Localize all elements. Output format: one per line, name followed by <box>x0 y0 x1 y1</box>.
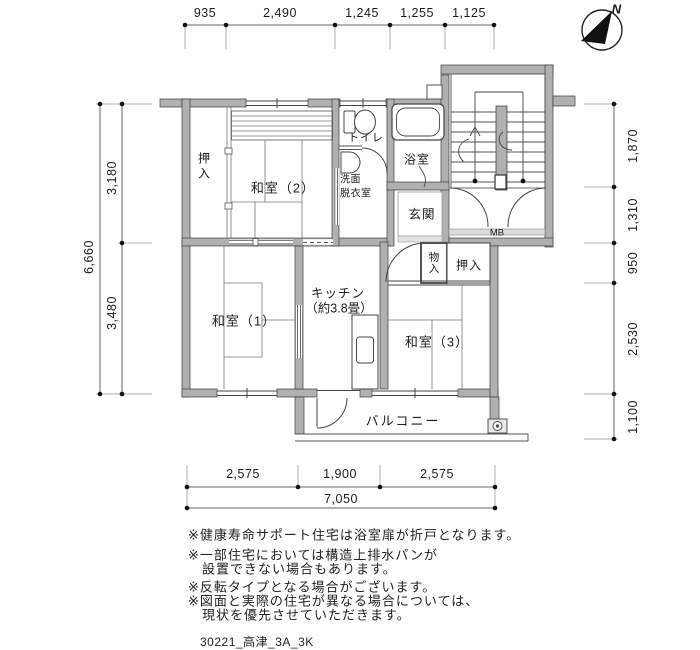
dim-label-bottom-total: 7,050 <box>324 492 358 506</box>
note-line-1: ※健康寿命サポート住宅は浴室扉が折戸となります。 <box>188 525 520 544</box>
dim-label-bottom-3: 2,575 <box>420 467 454 481</box>
duct-box <box>427 85 442 99</box>
note-line-6: 現状を優先させていただきます。 <box>188 605 411 624</box>
room-label-kitchen-2: （約3.8畳） <box>305 298 372 317</box>
dim-label-top-3: 1,245 <box>345 6 379 20</box>
toilet-partition <box>339 146 362 150</box>
dim-label-right-2: 1,310 <box>626 198 640 232</box>
hall-door-arc <box>386 243 425 282</box>
room-label-genkan: 玄関 <box>408 204 435 223</box>
note-line-3: 設置できない場合もあります。 <box>188 559 397 578</box>
balcony-door-arc <box>317 398 347 428</box>
dim-label-left-2: 3,480 <box>105 296 119 330</box>
dim-label-left-total: 6,660 <box>82 240 96 274</box>
room-label-monoire: 物入 <box>427 252 442 275</box>
balcony-drain-icon <box>488 419 507 433</box>
bathtub-icon <box>392 104 444 140</box>
room-label-washitsu3: 和室（3） <box>405 332 469 351</box>
entrance-door-arc-right <box>508 188 546 227</box>
stair-direction-lines <box>459 92 523 181</box>
room-label-senmen-2: 脱衣室 <box>340 185 372 200</box>
room-label-senmen-1: 洗面 <box>340 171 361 186</box>
north-label: N <box>612 2 622 17</box>
room-label-oshiire-left: 押入 <box>196 152 213 182</box>
room-label-oshiire-right: 押入 <box>456 257 482 274</box>
toilet-door-arc <box>362 148 387 173</box>
landing-stub-wall <box>495 175 506 189</box>
dim-label-bottom-1: 2,575 <box>226 467 260 481</box>
plan-id-label: 30221_高津_3A_3K <box>200 633 314 650</box>
room-label-mb: MB <box>490 228 504 239</box>
dimension-lines <box>96 23 618 511</box>
room-label-balcony: バルコニー <box>366 411 441 430</box>
floor-plan-page: 935 2,490 1,245 1,255 1,125 6,660 3,180 … <box>0 0 700 650</box>
dim-label-right-4: 2,530 <box>626 322 640 356</box>
dim-label-top-1: 935 <box>194 6 216 20</box>
sliding-openings <box>229 168 339 358</box>
balcony-railing <box>295 434 528 441</box>
dim-label-bottom-2: 1,900 <box>323 467 357 481</box>
dim-label-right-1: 1,870 <box>626 129 640 163</box>
room-label-washitsu2: 和室（2） <box>251 178 315 197</box>
dim-label-left-1: 3,180 <box>105 161 119 195</box>
dim-label-top-4: 1,255 <box>400 6 434 20</box>
dimension-dots <box>98 23 617 511</box>
room-label-toilet: トイレ <box>348 129 384 145</box>
dim-label-right-5: 1,100 <box>626 400 640 434</box>
room-label-bath: 浴室 <box>404 151 430 168</box>
kitchen-counter-icon <box>352 315 378 389</box>
stairwell <box>450 74 546 227</box>
dim-label-top-2: 2,490 <box>263 6 297 20</box>
dim-label-right-3: 950 <box>626 252 640 274</box>
dim-label-top-5: 1,125 <box>452 6 486 20</box>
room-label-washitsu1: 和室（1） <box>212 311 276 330</box>
entrance-door-arc-left <box>450 188 488 227</box>
